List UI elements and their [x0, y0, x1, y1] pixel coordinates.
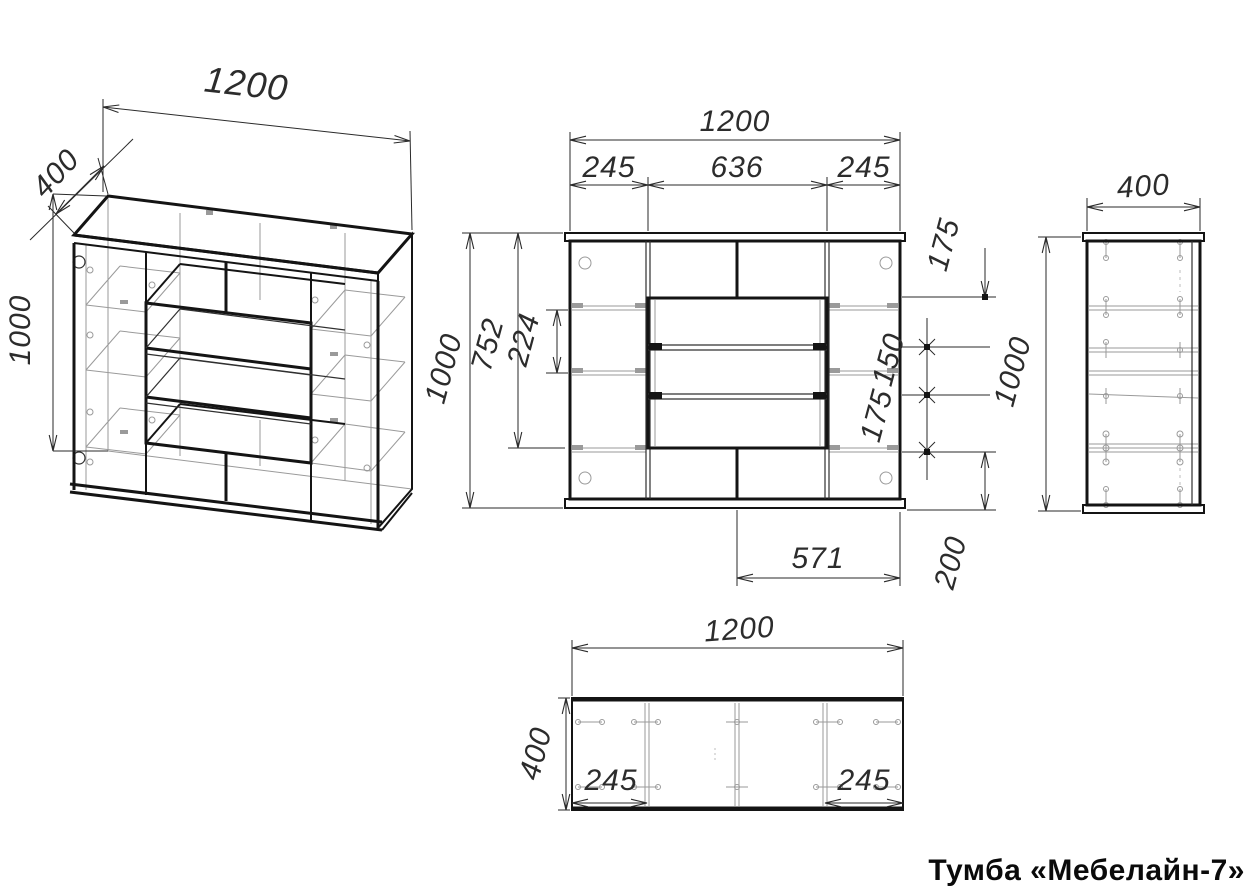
front-internals: [572, 257, 898, 484]
front-dim-base-width: 571: [791, 542, 844, 575]
iso-carcass: [70, 196, 412, 530]
drawing-title: Тумба «Мебелайн-7»: [928, 854, 1245, 887]
iso-dim-height: 1000: [4, 295, 37, 366]
drawing-canvas: 1200 400 1000: [0, 0, 1260, 892]
plan-dim-inset-left: 245: [583, 764, 637, 797]
front-dim-col-mid: 636: [710, 151, 763, 184]
iso-drawer-block: [146, 264, 345, 463]
front-drawer-block: [648, 298, 827, 448]
front-view: 1200 245 636 245 1000 752 224: [419, 105, 996, 593]
front-dim-height: 1000: [419, 330, 469, 407]
plan-view: 1200 400 245 245: [513, 611, 903, 810]
plan-dim-width: 1200: [703, 611, 776, 649]
front-dim-top-offset: 175: [921, 215, 967, 275]
front-dim-drawer-gap-1: 150: [866, 330, 912, 390]
front-dim-shelf-gap: 224: [501, 310, 547, 371]
side-dim-height: 1000: [988, 333, 1038, 410]
front-dim-col-left: 245: [581, 151, 635, 184]
front-dim-col-right: 245: [836, 151, 890, 184]
blueprint-page: 1200 400 1000: [0, 0, 1260, 892]
side-carcass: [1083, 233, 1204, 513]
iso-view: 1200 400 1000: [4, 58, 412, 530]
plan-dim-depth: 400: [513, 724, 559, 784]
side-fittings: [1103, 240, 1183, 508]
iso-dim-width: 1200: [202, 58, 290, 108]
front-dim-bottom-offset: 200: [928, 533, 974, 594]
front-dim-width: 1200: [700, 105, 771, 138]
front-dim-drawer-gap-2: 175: [854, 386, 900, 446]
plan-dim-inset-right: 245: [836, 764, 890, 797]
side-internals: [1089, 240, 1198, 508]
front-dim-inner-height: 752: [465, 315, 511, 375]
front-dimensions: 1200 245 636 245 1000 752 224: [419, 105, 996, 593]
iso-dimensions: 1200 400 1000: [4, 58, 412, 451]
side-dim-depth: 400: [1116, 168, 1171, 205]
side-dimensions: 400 1000: [988, 168, 1200, 511]
side-view: 400 1000: [988, 168, 1204, 513]
